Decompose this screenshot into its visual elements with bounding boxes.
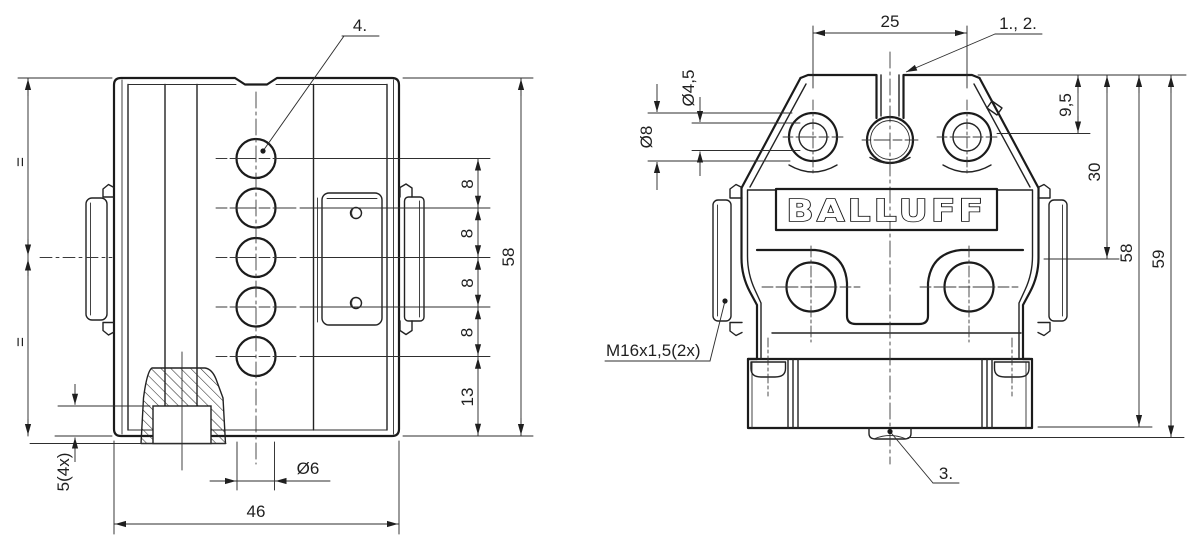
right-callout-3: 3. [887,429,959,483]
right-view: BALLUFF 25 1., 2. [605,12,1186,483]
dim-25: 25 [881,12,900,31]
right-left-connector [713,185,742,336]
dim-13: 13 [458,388,477,407]
dim-30: 30 [1085,163,1104,182]
dim-8-4: 8 [458,328,477,337]
right-dim-stack: 9,5 30 58 59 [908,75,1186,438]
dim-8-2: 8 [458,229,477,238]
dim-58-right: 58 [1117,244,1136,263]
thread-leader-dot [722,298,727,303]
dim-5-4x: 5(4x) [54,453,73,492]
right-right-connector [1038,185,1067,336]
left-side-block [322,193,382,325]
equal-bottom-label: = [11,337,30,347]
right-center-hole [862,52,918,464]
left-dim-chain: 8 8 8 8 13 [290,159,490,437]
dim-58-left: 58 [499,248,518,267]
left-dim-58: 58 [403,78,533,436]
right-callout-1-2: 1., 2. [906,14,1042,72]
dim-9-5: 9,5 [1056,93,1075,117]
dim-d8: Ø8 [637,126,656,149]
left-dim-equal: = = [11,78,112,436]
equal-top-label: = [11,157,30,167]
left-dim-46: 46 [114,441,399,534]
callout-3-label: 3. [939,464,953,483]
thread-label: M16x1,5(2x) [606,341,700,360]
left-view: = = 8 8 8 8 13 [11,16,533,534]
dim-d45: Ø4,5 [679,70,698,107]
left-dim-foot: 5(4x) [54,384,150,491]
callout-4-dot [260,148,265,153]
dim-8-1: 8 [458,179,477,188]
right-dim-diameters: Ø4,5 Ø8 [637,70,800,190]
left-right-flange [400,184,424,335]
callout-3-dot [887,429,892,434]
technical-drawing-page: = = 8 8 8 8 13 [0,0,1200,551]
left-holes [216,92,296,464]
left-dim-d6: Ø6 [210,442,330,490]
drawing-svg: = = 8 8 8 8 13 [0,0,1200,551]
dim-59: 59 [1149,250,1168,269]
right-dim-25: 25 [813,12,967,88]
left-left-flange [86,185,114,336]
dim-46: 46 [247,502,266,521]
balluff-logo: BALLUFF [787,194,987,229]
balluff-logo-plate: BALLUFF [776,189,997,230]
callout-1-2-label: 1., 2. [999,14,1037,33]
dim-d6: Ø6 [297,459,320,478]
right-thread-label: M16x1,5(2x) [605,298,728,361]
dim-8-3: 8 [458,278,477,287]
callout-4-label: 4. [353,16,367,35]
